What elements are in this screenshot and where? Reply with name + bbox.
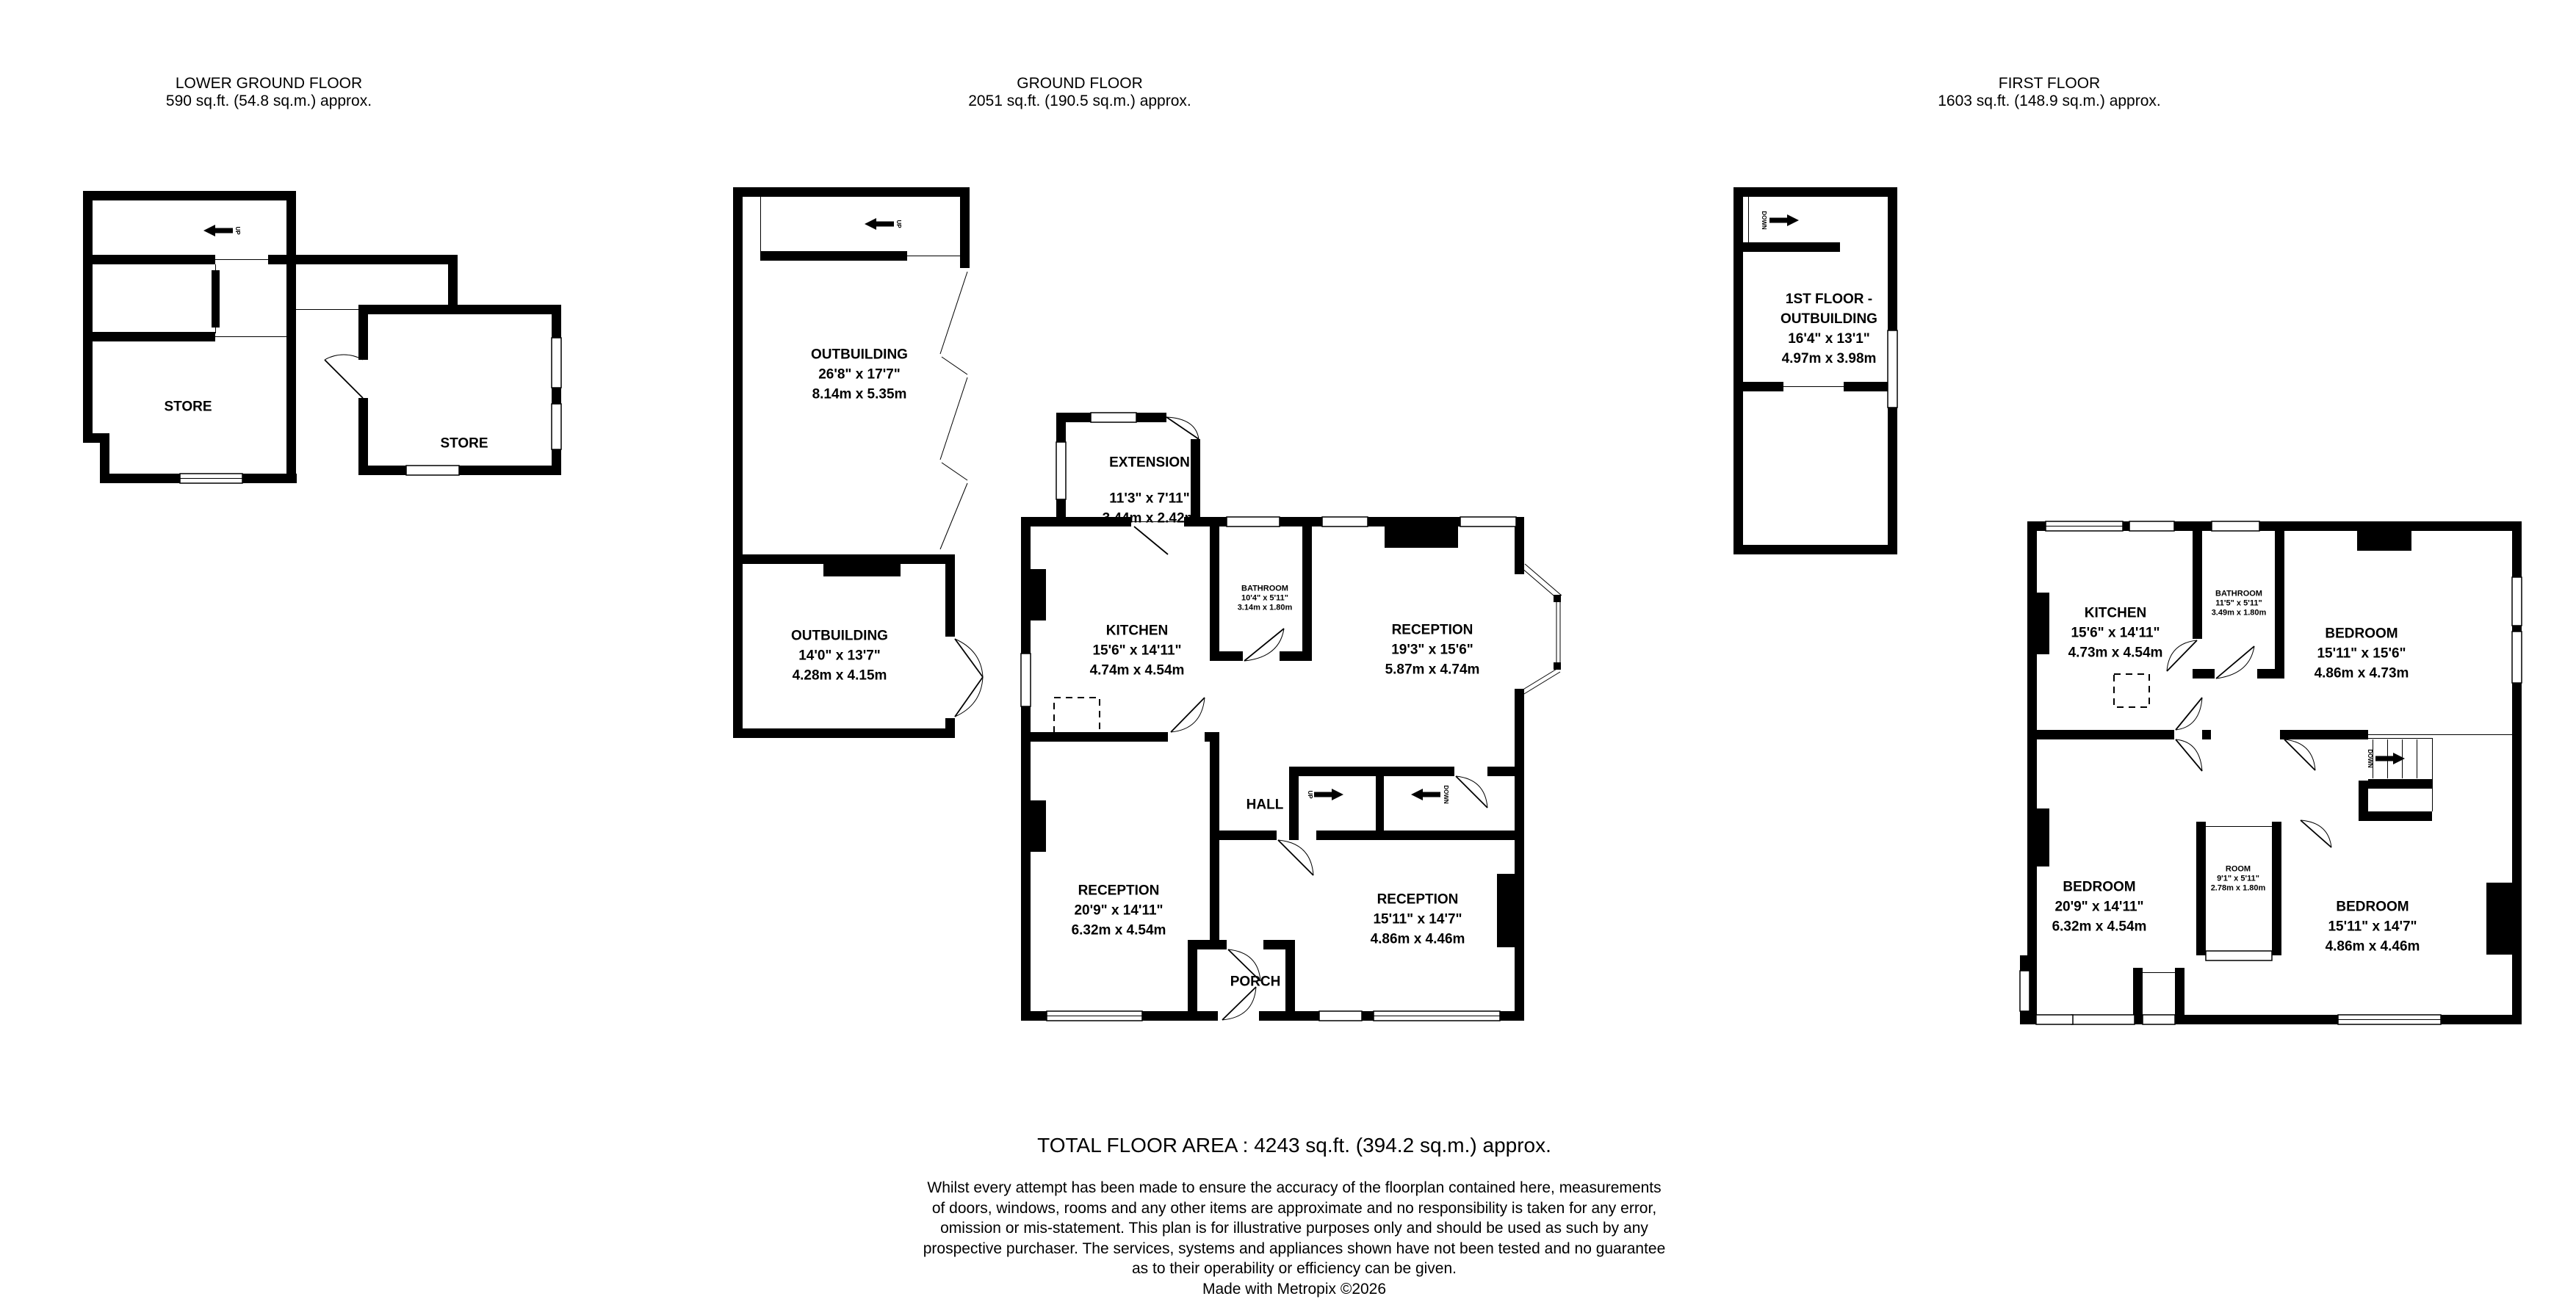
main-house-walls (2020, 521, 2522, 1024)
floor-area: 2051 sq.ft. (190.5 sq.m.) approx. (968, 93, 1191, 110)
room-dims-metric: 4.28m x 4.15m (791, 666, 888, 686)
stair-arrow-up: UP (203, 225, 241, 236)
room-dims-metric: 4.73m x 4.54m (2068, 643, 2163, 663)
svg-text:UP: UP (895, 220, 902, 228)
room-dims-metric: 5.87m x 4.74m (1385, 660, 1480, 680)
room-dims-imperial: 15'11" x 15'6" (2315, 644, 2409, 664)
room-label-bathroom-gf: BATHROOM 10'4" x 5'11" 3.14m x 1.80m (1238, 585, 1293, 613)
room-dims-imperial: 15'11" x 14'7" (2326, 917, 2420, 937)
kitchen-hatch-dashed (2114, 674, 2149, 707)
disclaimer-line: prospective purchaser. The services, sys… (923, 1239, 1666, 1259)
room-label-store-left: STORE (164, 397, 212, 417)
stair-arrow-down: DOWN (2367, 749, 2405, 768)
room-name: OUTBUILDING (811, 345, 908, 365)
room-name-line2: OUTBUILDING (1781, 309, 1877, 329)
room-name: RECEPTION (1371, 890, 1465, 910)
disclaimer-line: Whilst every attempt has been made to en… (923, 1178, 1666, 1198)
outbuilding-stair-arrow-down: DOWN (1761, 211, 1799, 230)
room-dims-imperial: 15'11" x 14'7" (1371, 910, 1465, 930)
room-dims-metric: 3.44m x 2.42m (1103, 509, 1197, 529)
room-label-reception-left: RECEPTION 20'9" x 14'11" 6.32m x 4.54m (1072, 881, 1166, 941)
floor-title: LOWER GROUND FLOOR (166, 75, 372, 93)
doors (2167, 640, 2331, 847)
room-name: PORCH (1230, 972, 1281, 992)
room-label-outbuilding-small: OUTBUILDING 14'0" x 13'7" 4.28m x 4.15m (791, 626, 888, 686)
room-dims-imperial: 9'1" x 5'11" (2211, 875, 2266, 884)
room-name: HALL (1246, 795, 1284, 815)
room-dims-metric: 8.14m x 5.35m (811, 385, 908, 405)
room-label-store-right: STORE (440, 434, 488, 454)
outbuilding-stair-arrow-up: UP (865, 218, 902, 230)
room-dims-metric: 3.14m x 1.80m (1238, 604, 1293, 613)
svg-text:DOWN: DOWN (2367, 749, 2373, 768)
room-label-hall: HALL (1246, 795, 1284, 815)
svg-text:DOWN: DOWN (1761, 211, 1767, 230)
room-label-outbuilding-large: OUTBUILDING 26'8" x 17'7" 8.14m x 5.35m (811, 345, 908, 405)
room-name-line1: 1ST FLOOR - (1781, 289, 1877, 309)
room-name: BEDROOM (2326, 897, 2420, 917)
disclaimer-line: as to their operability or efficiency ca… (923, 1259, 1666, 1279)
room-name: STORE (440, 434, 488, 454)
room-name: STORE (164, 397, 212, 417)
room-name: EXTENSION (1103, 453, 1197, 473)
room-dims-metric: 4.86m x 4.46m (2326, 937, 2420, 957)
room-label-kitchen-gf: KITCHEN 15'6" x 14'11" 4.74m x 4.54m (1090, 621, 1185, 681)
room-dims-imperial: 14'0" x 13'7" (791, 646, 888, 666)
room-label-first-outbuilding: 1ST FLOOR - OUTBUILDING 16'4" x 13'1" 4.… (1781, 289, 1877, 369)
room-dims-imperial: 20'9" x 14'11" (2052, 897, 2147, 917)
room-dims-imperial: 10'4" x 5'11" (1238, 594, 1293, 604)
room-dims-imperial: 20'9" x 14'11" (1072, 901, 1166, 921)
door (325, 355, 363, 398)
room-label-bedroom-top: BEDROOM 15'11" x 15'6" 4.86m x 4.73m (2315, 624, 2409, 684)
room-label-porch: PORCH (1230, 972, 1281, 992)
room-name: BATHROOM (1238, 585, 1293, 594)
room-label-kitchen-ff: KITCHEN 15'6" x 14'11" 4.73m x 4.54m (2068, 604, 2163, 663)
room-dims-metric: 4.74m x 4.54m (1090, 661, 1185, 681)
room-dims-imperial: 15'6" x 14'11" (2068, 623, 2163, 643)
room-dims-metric: 3.49m x 1.80m (2212, 609, 2267, 618)
room-label-bedroom-right: BEDROOM 15'11" x 14'7" 4.86m x 4.46m (2326, 897, 2420, 957)
room-dims-metric: 6.32m x 4.54m (1072, 921, 1166, 941)
room-name: OUTBUILDING (791, 626, 888, 646)
room-dims-imperial: 15'6" x 14'11" (1090, 641, 1185, 661)
room-dims-metric: 4.97m x 3.98m (1781, 349, 1877, 369)
room-dims-imperial: 16'4" x 13'1" (1781, 329, 1877, 349)
svg-text:DOWN: DOWN (1443, 785, 1449, 804)
room-name: RECEPTION (1072, 881, 1166, 901)
disclaimer-line: of doors, windows, rooms and any other i… (923, 1198, 1666, 1219)
room-dims-imperial: 19'3" x 15'6" (1385, 640, 1480, 660)
stair-arrow-up: UP (1307, 789, 1343, 800)
windows (2020, 521, 2522, 1024)
room-dims-metric: 6.32m x 4.54m (2052, 917, 2147, 937)
room-label-reception-top: RECEPTION 19'3" x 15'6" 5.87m x 4.74m (1385, 620, 1480, 680)
room-name: RECEPTION (1385, 620, 1480, 640)
total-floor-area: TOTAL FLOOR AREA : 4243 sq.ft. (394.2 sq… (1037, 1134, 1551, 1157)
svg-text:UP: UP (1307, 790, 1313, 799)
room-dims-metric: 2.78m x 1.80m (2211, 884, 2266, 894)
room-label-bedroom-left: BEDROOM 20'9" x 14'11" 6.32m x 4.54m (2052, 878, 2147, 937)
room-dims-imperial: 26'8" x 17'7" (811, 365, 908, 385)
credit: Made with Metropix ©2026 (923, 1279, 1666, 1299)
room-name: BEDROOM (2315, 624, 2409, 644)
room-label-extension: EXTENSION 11'3" x 7'11" 3.44m x 2.42m (1103, 453, 1197, 529)
room-dims-imperial: 11'5" x 5'11" (2212, 599, 2267, 609)
floor-title-first: FIRST FLOOR 1603 sq.ft. (148.9 sq.m.) ap… (1938, 75, 2161, 110)
floor-area: 590 sq.ft. (54.8 sq.m.) approx. (166, 93, 372, 110)
room-dims-metric: 4.86m x 4.73m (2315, 664, 2409, 684)
room-dims-metric: 4.86m x 4.46m (1371, 930, 1465, 949)
room-dims-imperial: 11'3" x 7'11" (1103, 489, 1197, 509)
disclaimer-line: omission or mis-statement. This plan is … (923, 1218, 1666, 1239)
floor-area: 1603 sq.ft. (148.9 sq.m.) approx. (1938, 93, 2161, 110)
room-name: ROOM (2211, 865, 2266, 875)
floor-title: GROUND FLOOR (968, 75, 1191, 93)
room-label-room: ROOM 9'1" x 5'11" 2.78m x 1.80m (2211, 865, 2266, 894)
room-name: BEDROOM (2052, 878, 2147, 897)
room-label-reception-right: RECEPTION 15'11" x 14'7" 4.86m x 4.46m (1371, 890, 1465, 949)
bay-window (1518, 564, 1562, 696)
room-name: KITCHEN (2068, 604, 2163, 623)
room-label-bathroom-ff: BATHROOM 11'5" x 5'11" 3.49m x 1.80m (2212, 590, 2267, 618)
walls (83, 191, 561, 483)
disclaimer: Whilst every attempt has been made to en… (923, 1178, 1666, 1299)
room-name: KITCHEN (1090, 621, 1185, 641)
floor-title: FIRST FLOOR (1938, 75, 2161, 93)
svg-text:UP: UP (234, 226, 241, 235)
floor-title-lower-ground: LOWER GROUND FLOOR 590 sq.ft. (54.8 sq.m… (166, 75, 372, 110)
outbuilding-walls (1733, 187, 1897, 554)
windows (180, 338, 561, 483)
floor-title-ground: GROUND FLOOR 2051 sq.ft. (190.5 sq.m.) a… (968, 75, 1191, 110)
floorplan-lower-ground: UP (81, 184, 580, 492)
room-name: BATHROOM (2212, 590, 2267, 599)
stair-arrow-down: DOWN (1411, 785, 1449, 804)
